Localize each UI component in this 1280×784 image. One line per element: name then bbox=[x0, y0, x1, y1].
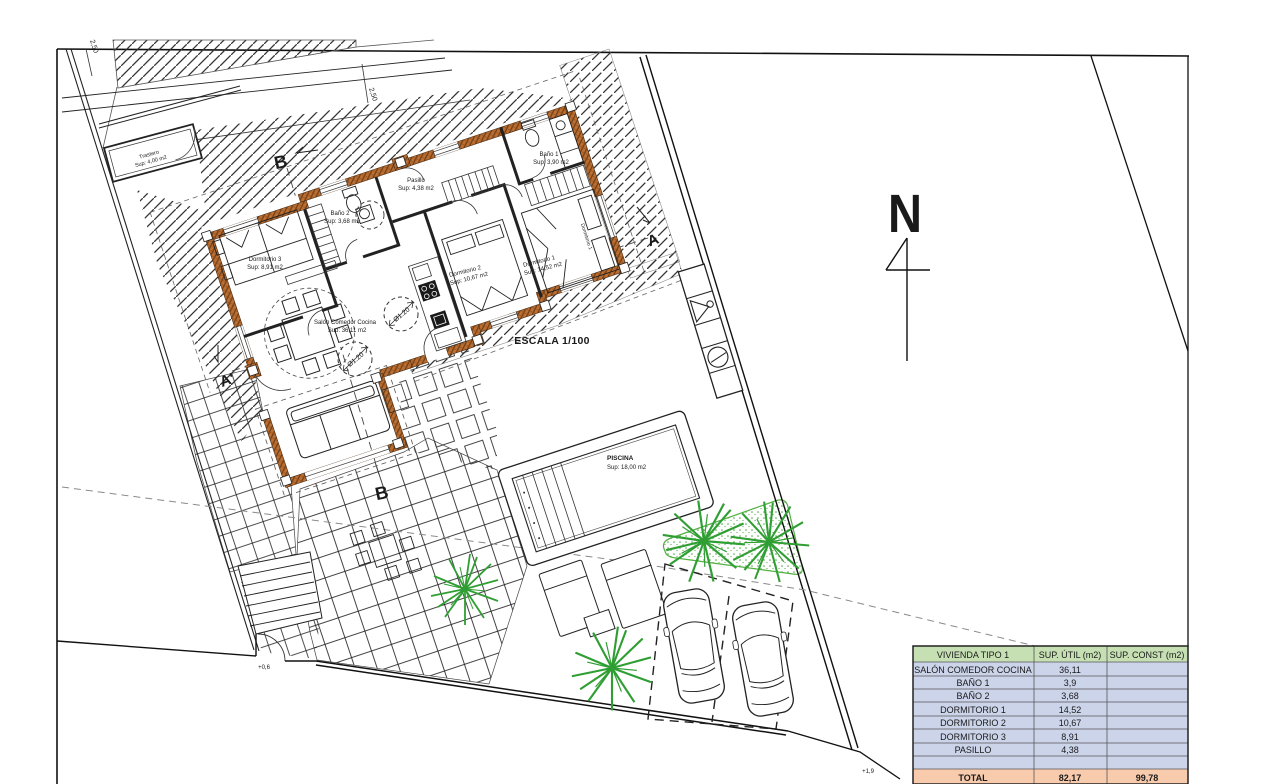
svg-text:SALÓN COMEDOR COCINA: SALÓN COMEDOR COCINA bbox=[914, 665, 1032, 675]
svg-text:4,38: 4,38 bbox=[1061, 745, 1079, 755]
svg-text:Sup: 3,68 m2: Sup: 3,68 m2 bbox=[324, 219, 360, 225]
svg-text:Sup: 36,11 m2: Sup: 36,11 m2 bbox=[328, 328, 367, 334]
svg-text:Pasillo: Pasillo bbox=[407, 178, 425, 184]
svg-text:Salón Comedor Cocina: Salón Comedor Cocina bbox=[314, 320, 377, 326]
svg-text:Sup: 18,00 m2: Sup: 18,00 m2 bbox=[607, 465, 647, 471]
svg-text:ESCALA 1/100: ESCALA 1/100 bbox=[514, 335, 590, 347]
svg-text:+1,9: +1,9 bbox=[862, 769, 875, 775]
svg-text:10,67: 10,67 bbox=[1059, 718, 1082, 728]
svg-text:Baño 2: Baño 2 bbox=[330, 211, 350, 217]
svg-text:SUP. CONST (m2): SUP. CONST (m2) bbox=[1110, 650, 1185, 660]
svg-text:+0,6: +0,6 bbox=[258, 665, 271, 671]
svg-text:PASILLO: PASILLO bbox=[955, 745, 992, 755]
svg-text:BAÑO 2: BAÑO 2 bbox=[956, 691, 989, 701]
svg-text:3,9: 3,9 bbox=[1064, 678, 1077, 688]
svg-text:PISCINA: PISCINA bbox=[607, 455, 634, 462]
svg-text:N: N bbox=[888, 184, 922, 244]
svg-text:TOTAL: TOTAL bbox=[958, 773, 988, 783]
svg-text:82,17: 82,17 bbox=[1059, 773, 1082, 783]
svg-text:Sup: 4,38 m2: Sup: 4,38 m2 bbox=[398, 186, 434, 192]
svg-text:Sup: 3,90 m2: Sup: 3,90 m2 bbox=[533, 160, 569, 166]
svg-text:36,11: 36,11 bbox=[1059, 665, 1081, 675]
svg-text:14,52: 14,52 bbox=[1059, 705, 1082, 715]
svg-text:BAÑO 1: BAÑO 1 bbox=[956, 678, 989, 688]
svg-text:8,91: 8,91 bbox=[1061, 732, 1079, 742]
svg-text:DORMITORIO 1: DORMITORIO 1 bbox=[940, 705, 1006, 715]
svg-text:Dormitorio 3: Dormitorio 3 bbox=[249, 257, 282, 263]
svg-text:DORMITORIO 2: DORMITORIO 2 bbox=[940, 718, 1006, 728]
svg-text:3,68: 3,68 bbox=[1061, 691, 1079, 701]
svg-text:Baño 1: Baño 1 bbox=[539, 152, 559, 158]
svg-text:VIVIENDA TIPO 1: VIVIENDA TIPO 1 bbox=[937, 650, 1009, 660]
svg-text:SUP. ÚTIL (m2): SUP. ÚTIL (m2) bbox=[1039, 650, 1102, 660]
svg-text:99,78: 99,78 bbox=[1136, 773, 1159, 783]
svg-text:DORMITORIO 3: DORMITORIO 3 bbox=[940, 732, 1006, 742]
svg-text:Sup: 8,91 m2: Sup: 8,91 m2 bbox=[247, 265, 283, 271]
